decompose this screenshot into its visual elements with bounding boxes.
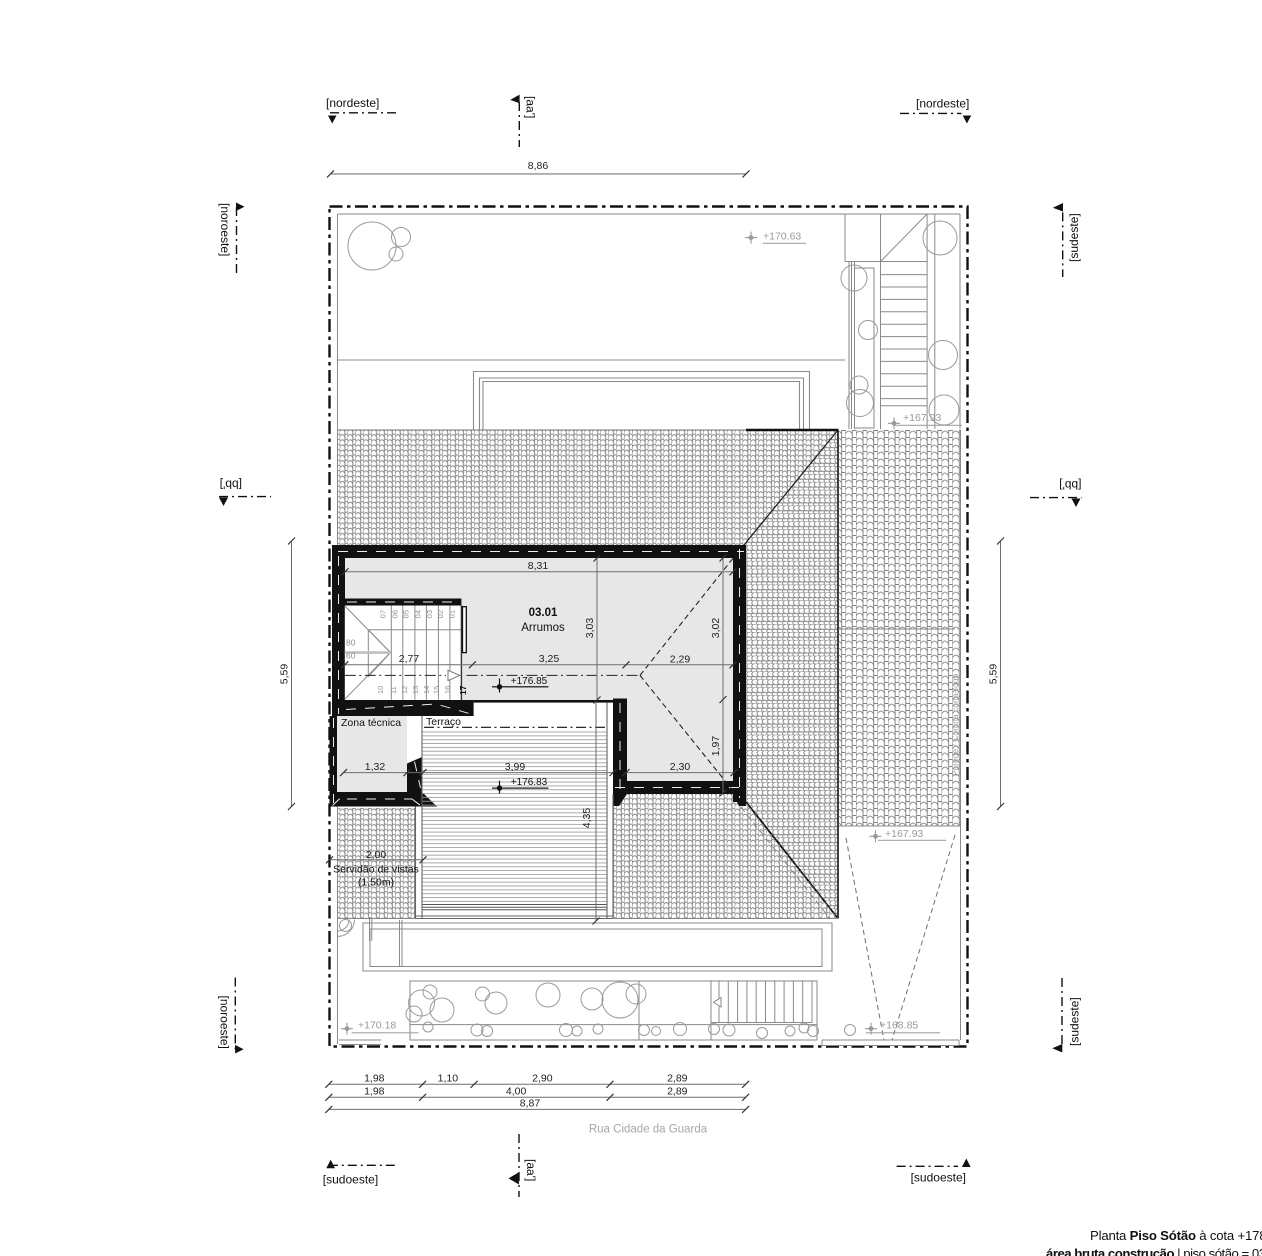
svg-text:[aa']: [aa'] [524, 1159, 538, 1181]
svg-text:2,29: 2,29 [670, 654, 691, 666]
svg-text:[sudeste]: [sudeste] [1067, 213, 1081, 262]
svg-text:1,98: 1,98 [364, 1073, 385, 1085]
svg-text:2,77: 2,77 [399, 653, 420, 665]
svg-text:+176.85: +176.85 [511, 676, 548, 687]
svg-text:2,90: 2,90 [532, 1073, 553, 1085]
svg-text:[nordeste]: [nordeste] [326, 96, 379, 110]
svg-text:4,35: 4,35 [581, 808, 593, 829]
svg-text:1,97: 1,97 [710, 736, 722, 757]
svg-text:+170.18: +170.18 [358, 1020, 396, 1032]
svg-text:80: 80 [346, 638, 356, 648]
svg-text:[sudoeste]: [sudoeste] [323, 1173, 378, 1187]
svg-text:+168.85: +168.85 [880, 1020, 918, 1032]
svg-text:1,98: 1,98 [364, 1086, 385, 1098]
svg-text:(1,50m): (1,50m) [358, 877, 394, 889]
svg-text:16: 16 [443, 686, 452, 694]
svg-text:área bruta construção | piso s: área bruta construção | piso sótão = 031… [1046, 1246, 1262, 1256]
svg-text:05: 05 [402, 610, 411, 618]
svg-text:8,86: 8,86 [528, 160, 549, 172]
svg-text:[noroeste]: [noroeste] [218, 203, 232, 256]
svg-text:[bb']: [bb'] [220, 478, 242, 492]
svg-text:[sudeste]: [sudeste] [1068, 997, 1082, 1046]
svg-text:+167.93: +167.93 [885, 828, 923, 840]
svg-text:12: 12 [400, 686, 409, 694]
svg-text:60: 60 [346, 651, 356, 661]
svg-text:4,00: 4,00 [506, 1086, 527, 1098]
svg-text:+176.83: +176.83 [511, 777, 548, 788]
svg-text:Zona técnica: Zona técnica [341, 717, 401, 729]
svg-text:8,31: 8,31 [528, 560, 549, 572]
svg-text:1,10: 1,10 [438, 1073, 459, 1085]
svg-text:5,59: 5,59 [279, 664, 291, 685]
svg-text:2,00: 2,00 [366, 849, 387, 861]
svg-text:1,32: 1,32 [365, 761, 386, 773]
svg-text:+167.93: +167.93 [903, 412, 941, 424]
svg-text:Terraço: Terraço [426, 716, 461, 728]
svg-text:11: 11 [389, 686, 398, 694]
svg-text:01: 01 [448, 610, 457, 618]
svg-text:3,03: 3,03 [584, 618, 596, 639]
svg-text:2,89: 2,89 [667, 1073, 688, 1085]
svg-text:17: 17 [458, 685, 468, 695]
svg-text:13: 13 [411, 686, 420, 694]
svg-text:15: 15 [432, 686, 441, 694]
svg-text:+170.63: +170.63 [763, 231, 801, 243]
svg-text:5,59: 5,59 [988, 664, 1000, 685]
svg-text:10: 10 [376, 686, 385, 694]
svg-text:3,25: 3,25 [539, 653, 560, 665]
svg-text:14: 14 [422, 686, 431, 694]
svg-text:[bb']: [bb'] [1059, 478, 1081, 492]
svg-text:Servidão de vistas: Servidão de vistas [333, 864, 419, 876]
svg-text:07: 07 [379, 610, 388, 618]
svg-text:Parede / Cortina corta-fogo: Parede / Cortina corta-fogo [950, 673, 960, 776]
svg-text:3,02: 3,02 [710, 618, 722, 639]
svg-text:Rua Cidade da Guarda: Rua Cidade da Guarda [589, 1124, 708, 1136]
svg-text:03.01: 03.01 [529, 607, 558, 619]
svg-text:04: 04 [414, 610, 423, 618]
svg-text:02: 02 [436, 610, 445, 618]
svg-text:[aa']: [aa'] [524, 96, 538, 118]
svg-text:8,87: 8,87 [520, 1098, 541, 1110]
svg-text:2,89: 2,89 [667, 1086, 688, 1098]
svg-text:3,99: 3,99 [505, 761, 526, 773]
svg-text:Arrumos: Arrumos [521, 622, 565, 634]
svg-text:03: 03 [425, 610, 434, 618]
svg-text:2,30: 2,30 [670, 761, 691, 773]
svg-text:06: 06 [391, 610, 400, 618]
svg-text:[nordeste]: [nordeste] [916, 97, 969, 111]
svg-text:Planta Piso Sótão à cota +178.: Planta Piso Sótão à cota +178.20 [1090, 1228, 1262, 1243]
svg-text:[sudoeste]: [sudoeste] [911, 1171, 966, 1185]
svg-text:[noroeste]: [noroeste] [218, 996, 232, 1049]
